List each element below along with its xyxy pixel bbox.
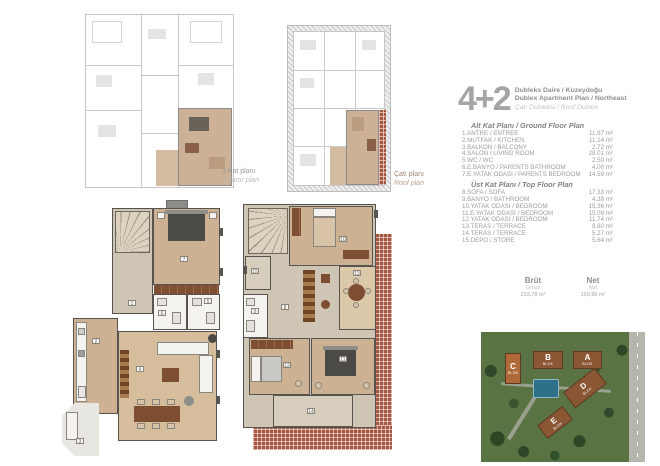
- room-name: 7.E.YATAK ODASI / PARENTS BEDROOM: [462, 172, 581, 179]
- stove: [78, 350, 85, 357]
- block-a: A BLOK: [573, 351, 602, 369]
- terrace-chair: [353, 302, 359, 308]
- room-marker-antre: 1: [128, 300, 136, 306]
- block-b-letter: B: [545, 354, 551, 362]
- net-total: Net Net 160,86 m²: [571, 276, 615, 299]
- chair: [137, 423, 145, 429]
- sink: [157, 298, 167, 306]
- brick-terrace-edge-bottom: [253, 425, 392, 450]
- block-e: E BLOK: [537, 406, 573, 439]
- room-marker-balcony: 3: [76, 438, 84, 444]
- wardrobe: [251, 340, 293, 349]
- cabinet: [120, 350, 129, 398]
- wardrobe: [292, 208, 301, 236]
- room-marker-bedroom12: 12: [283, 362, 291, 368]
- room-area: 14.59 m²: [589, 172, 613, 179]
- chair: [167, 423, 175, 429]
- chair: [363, 382, 370, 389]
- staircase: [248, 208, 288, 254]
- room-marker-ebanyo: 6: [158, 310, 166, 316]
- nightstand: [209, 212, 217, 219]
- room-area-list: Alt Kat Planı / Ground Floor Plan 1.ANTR…: [462, 121, 613, 244]
- brochure-page: 3.Kat planı 3.Floor plan Çatı planı Roof…: [0, 0, 660, 466]
- room-marker-sofa: 8: [281, 304, 289, 310]
- block-c: C BLOK: [505, 353, 521, 384]
- bed-pillow-end: [251, 356, 261, 382]
- brick-terrace-edge-right: [375, 234, 392, 450]
- bed: [325, 350, 356, 376]
- roof-overview-plan: [287, 25, 391, 192]
- room-marker-bedroom10: 10: [339, 236, 347, 242]
- gross-total: Brüt Gross 233,78 m²: [511, 276, 555, 299]
- room-marker-kitchen: 2: [92, 338, 100, 344]
- pool: [533, 379, 559, 398]
- chair: [167, 399, 175, 405]
- pouf: [184, 396, 194, 406]
- chair: [152, 423, 160, 429]
- third-floor-label-en: 3.Floor plan: [222, 176, 259, 185]
- balcony-unit: [66, 412, 78, 440]
- net-sublabel: Net: [571, 285, 615, 292]
- room-name: 15.DEPO / STORE: [462, 238, 515, 245]
- block-b-sub: BLOK: [543, 362, 554, 366]
- gross-sublabel: Gross: [511, 285, 555, 292]
- decor: [321, 300, 330, 309]
- toilet: [246, 320, 255, 332]
- room-marker-depo: 15: [251, 268, 259, 274]
- site-aerial-photo: A BLOK B BLOK C BLOK D BLOK E BLOK: [481, 332, 645, 462]
- room-area: 5.64 m²: [592, 238, 613, 245]
- header-subtitle: Çatı Dubleksi / Roof Dublex: [515, 104, 627, 112]
- block-a-letter: A: [585, 354, 591, 362]
- chair: [137, 399, 145, 405]
- toilet: [206, 312, 215, 324]
- parents-bed: [168, 214, 205, 241]
- block-c-letter: C: [510, 363, 516, 371]
- roof-plan-label: Çatı planı Roof plan: [394, 170, 424, 188]
- sink: [78, 328, 85, 335]
- room-marker-parents-bedroom: 7: [180, 256, 188, 262]
- room-marker-terrace14: 14: [307, 408, 315, 414]
- roof-label-tr: Çatı planı: [394, 170, 424, 179]
- bedroom-sofa: [343, 250, 369, 259]
- fridge: [78, 386, 86, 398]
- terrace-chair: [365, 288, 371, 294]
- room-row: 15.DEPO / STORE5.64 m²: [462, 238, 613, 245]
- chair: [152, 399, 160, 405]
- room-row: 7.E.YATAK ODASI / PARENTS BEDROOM14.59 m…: [462, 172, 613, 179]
- toilet: [172, 312, 181, 324]
- net-value: 160,86 m²: [571, 292, 615, 299]
- nightstand: [157, 212, 165, 219]
- sofa: [199, 355, 213, 393]
- header-title-en: Dublex Apartment Plan / Northeast: [515, 95, 627, 103]
- block-b: B BLOK: [533, 351, 563, 369]
- area-totals: Brüt Gross 233,78 m² Net Net 160,86 m²: [511, 276, 615, 299]
- third-floor-plan-label: 3.Kat planı 3.Floor plan: [222, 167, 259, 185]
- terrace-table: [348, 284, 365, 301]
- coffee-table: [162, 368, 179, 382]
- block-a-sub: BLOK: [582, 362, 593, 366]
- side-table: [208, 334, 217, 343]
- gross-label: Brüt: [511, 276, 555, 285]
- roof-label-en: Roof plan: [394, 179, 424, 188]
- block-d: D BLOK: [563, 368, 607, 408]
- ground-floor-detailed-plan: 1 2 3 4 5 6 7: [62, 200, 239, 458]
- net-label: Net: [571, 276, 615, 285]
- room-marker-bedroom11: 11: [339, 356, 347, 362]
- bed: [313, 217, 336, 247]
- sofa: [157, 342, 209, 355]
- terrace-chair: [343, 288, 349, 294]
- dining-table: [134, 406, 180, 422]
- room-marker-salon: 4: [136, 366, 144, 372]
- top-floor-detailed-plan: 8 9 10 11 12 13 14 15: [243, 196, 392, 454]
- bookcase: [303, 270, 315, 322]
- third-floor-label-tr: 3.Kat planı: [222, 167, 259, 176]
- header-title-tr: Dubleks Daire / Kuzeydoğu: [515, 87, 627, 95]
- room-marker-terrace13: 13: [353, 270, 361, 276]
- apartment-type-header: 4+2 Dubleks Daire / Kuzeydoğu Dublex Apa…: [458, 84, 648, 114]
- chair: [295, 380, 302, 387]
- road: [629, 332, 645, 462]
- room-marker-banyo: 9: [251, 308, 259, 314]
- sink: [192, 298, 202, 306]
- decor: [321, 274, 330, 283]
- wardrobe: [154, 285, 219, 294]
- block-c-sub: BLOK: [508, 371, 519, 375]
- terrace-chair: [353, 278, 359, 284]
- room-marker-wc: 5: [204, 298, 212, 304]
- chair: [315, 382, 322, 389]
- highlighted-unit-roof: [346, 110, 379, 185]
- bed: [261, 356, 282, 382]
- apartment-type-number: 4+2: [458, 84, 510, 114]
- staircase: [115, 211, 150, 253]
- bed-pillows: [313, 208, 336, 217]
- third-floor-overview-plan: [85, 14, 234, 188]
- sink: [246, 298, 255, 306]
- gross-value: 233,78 m²: [511, 292, 555, 299]
